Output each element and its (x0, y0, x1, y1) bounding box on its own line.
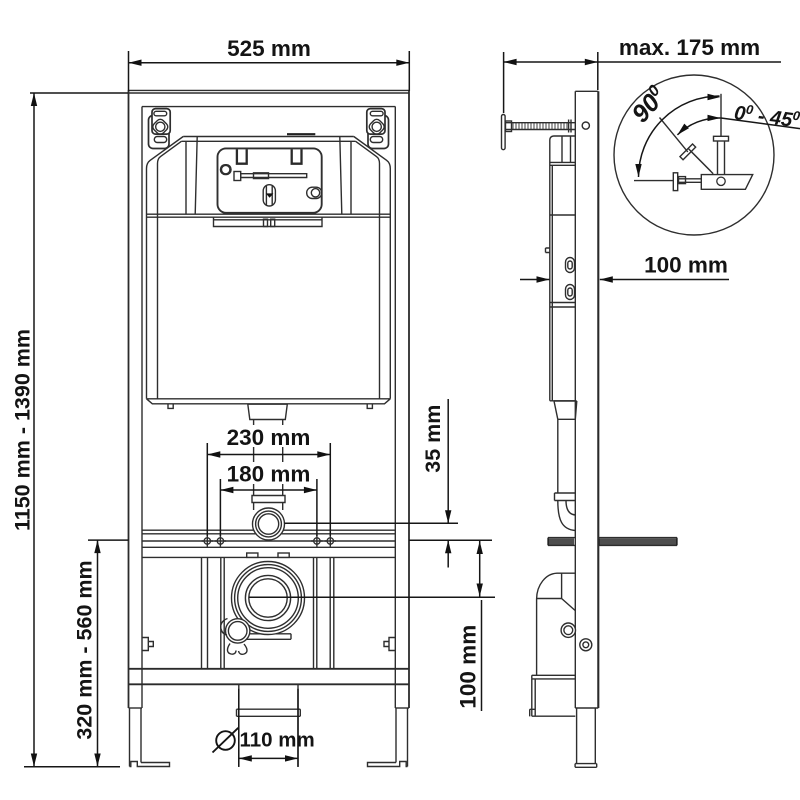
svg-text:1150 mm - 1390 mm: 1150 mm - 1390 mm (11, 329, 35, 531)
svg-text:100 mm: 100 mm (456, 625, 481, 709)
svg-text:180 mm: 180 mm (227, 462, 311, 487)
svg-text:525 mm: 525 mm (227, 36, 311, 61)
svg-text:230 mm: 230 mm (227, 425, 311, 450)
svg-text:35 mm: 35 mm (421, 405, 445, 473)
svg-text:100 mm: 100 mm (644, 253, 728, 278)
svg-text:320 mm - 560 mm: 320 mm - 560 mm (73, 560, 97, 739)
svg-text:max. 175 mm: max. 175 mm (619, 35, 760, 60)
svg-text:110 mm: 110 mm (240, 729, 315, 752)
